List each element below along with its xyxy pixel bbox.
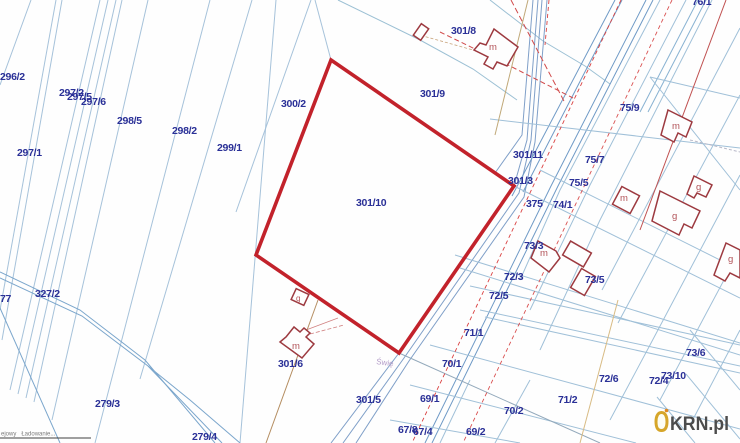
svg-text:69/2: 69/2	[466, 426, 486, 438]
svg-text:301/5: 301/5	[356, 394, 381, 406]
svg-text:g: g	[672, 211, 677, 222]
svg-text:298/5: 298/5	[117, 115, 142, 127]
svg-text:73/10: 73/10	[661, 370, 686, 382]
svg-text:69/1: 69/1	[420, 393, 440, 405]
svg-text:71/1: 71/1	[464, 327, 484, 339]
svg-text:67/4: 67/4	[413, 426, 433, 438]
svg-text:73/5: 73/5	[585, 274, 605, 286]
svg-text:77: 77	[0, 293, 12, 305]
svg-text:73/6: 73/6	[686, 347, 706, 359]
svg-text:m: m	[292, 341, 300, 352]
svg-text:301/9: 301/9	[420, 88, 445, 100]
svg-text:g: g	[696, 182, 701, 193]
svg-text:297/1: 297/1	[17, 147, 42, 159]
svg-text:297/6: 297/6	[81, 96, 106, 108]
svg-text:72/6: 72/6	[599, 373, 619, 385]
svg-text:72/5: 72/5	[489, 290, 509, 302]
svg-text:296/2: 296/2	[0, 71, 25, 83]
svg-text:74/1: 74/1	[553, 199, 573, 211]
svg-text:70/2: 70/2	[504, 405, 524, 417]
svg-text:300/2: 300/2	[281, 98, 306, 110]
svg-text:m: m	[620, 193, 628, 204]
svg-text:g: g	[296, 294, 300, 303]
svg-text:71/2: 71/2	[558, 394, 578, 406]
svg-text:g: g	[728, 254, 733, 265]
svg-text:299/1: 299/1	[217, 142, 242, 154]
svg-text:327/2: 327/2	[35, 288, 60, 300]
svg-text:76/1: 76/1	[692, 0, 712, 8]
svg-text:301/3: 301/3	[508, 175, 533, 187]
svg-text:73/3: 73/3	[524, 240, 544, 252]
svg-text:375: 375	[526, 198, 543, 210]
svg-text:301/10: 301/10	[356, 197, 387, 209]
svg-text:ejowy Ładowanie...: ejowy Ładowanie...	[1, 432, 56, 438]
svg-text:298/2: 298/2	[172, 125, 197, 137]
svg-text:72/3: 72/3	[504, 271, 524, 283]
svg-text:301/11: 301/11	[513, 149, 543, 161]
svg-text:75/9: 75/9	[620, 102, 640, 114]
svg-text:m: m	[672, 121, 680, 132]
svg-text:301/8: 301/8	[451, 25, 476, 37]
svg-text:75/5: 75/5	[569, 177, 589, 189]
svg-text:301/6: 301/6	[278, 358, 303, 370]
svg-text:75/7: 75/7	[585, 154, 605, 166]
svg-text:m: m	[489, 42, 497, 53]
svg-text:279/3: 279/3	[95, 398, 120, 410]
svg-text:70/1: 70/1	[442, 358, 462, 370]
svg-text:KRN.pl: KRN.pl	[670, 413, 729, 435]
svg-text:279/4: 279/4	[192, 431, 217, 443]
